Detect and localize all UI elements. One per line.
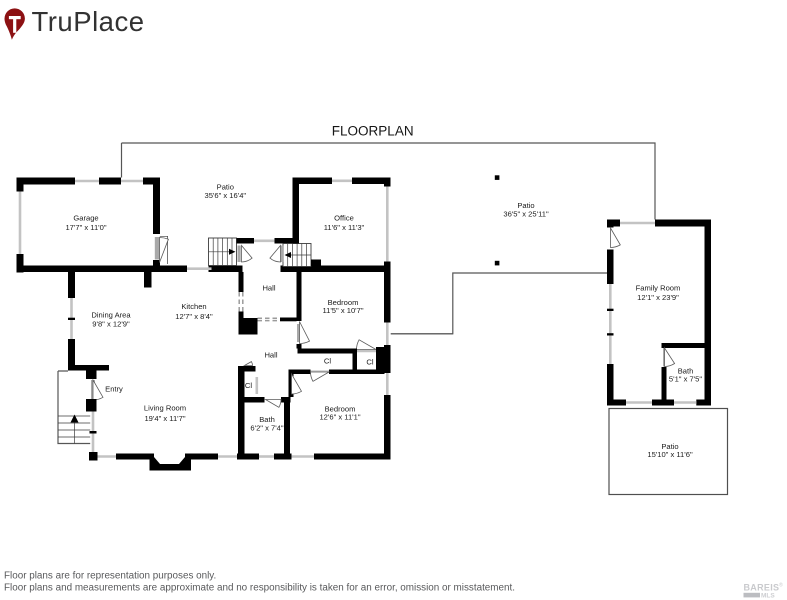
svg-text:12'6" x 11'1": 12'6" x 11'1" [319, 412, 360, 421]
svg-text:Dining Area: Dining Area [91, 310, 131, 319]
svg-text:6'2" x 7'4": 6'2" x 7'4" [250, 424, 284, 433]
svg-text:Cl: Cl [245, 381, 252, 390]
svg-text:Cl: Cl [324, 356, 331, 365]
svg-text:Kitchen: Kitchen [181, 302, 206, 311]
svg-text:11'5" x 10'7": 11'5" x 10'7" [322, 306, 363, 315]
svg-text:Garage: Garage [73, 213, 98, 222]
svg-text:Floor plans are for representa: Floor plans are for representation purpo… [4, 570, 216, 581]
svg-text:Living Room: Living Room [144, 403, 186, 412]
svg-text:Office: Office [334, 214, 354, 223]
svg-text:Cl: Cl [366, 358, 373, 367]
svg-text:11'6" x 11'3": 11'6" x 11'3" [324, 223, 365, 232]
svg-text:TruPlace: TruPlace [32, 6, 145, 37]
svg-text:12'1" x 23'9": 12'1" x 23'9" [637, 293, 679, 302]
svg-text:9'8" x 12'9": 9'8" x 12'9" [92, 319, 130, 328]
svg-text:Hall: Hall [262, 284, 275, 293]
svg-text:Family Room: Family Room [636, 284, 681, 293]
svg-text:BAREIS: BAREIS [744, 583, 780, 593]
svg-text:35'6" x 16'4": 35'6" x 16'4" [204, 191, 246, 200]
svg-text:15'10" x 11'6": 15'10" x 11'6" [647, 450, 693, 459]
svg-text:Floor plans and measurements a: Floor plans and measurements are approxi… [4, 583, 515, 594]
svg-text:MLS: MLS [761, 593, 775, 600]
svg-text:Entry: Entry [105, 384, 123, 393]
svg-text:5'1" x 7'5": 5'1" x 7'5" [669, 374, 703, 383]
svg-text:36'5" x 25'11": 36'5" x 25'11" [503, 210, 549, 219]
svg-text:17'7" x 11'0": 17'7" x 11'0" [65, 223, 106, 232]
svg-text:®: ® [779, 582, 783, 589]
svg-text:12'7" x 8'4": 12'7" x 8'4" [175, 312, 213, 321]
svg-text:FLOORPLAN: FLOORPLAN [332, 124, 414, 139]
svg-text:19'4" x 11'7": 19'4" x 11'7" [144, 414, 185, 423]
svg-text:Hall: Hall [264, 351, 277, 360]
